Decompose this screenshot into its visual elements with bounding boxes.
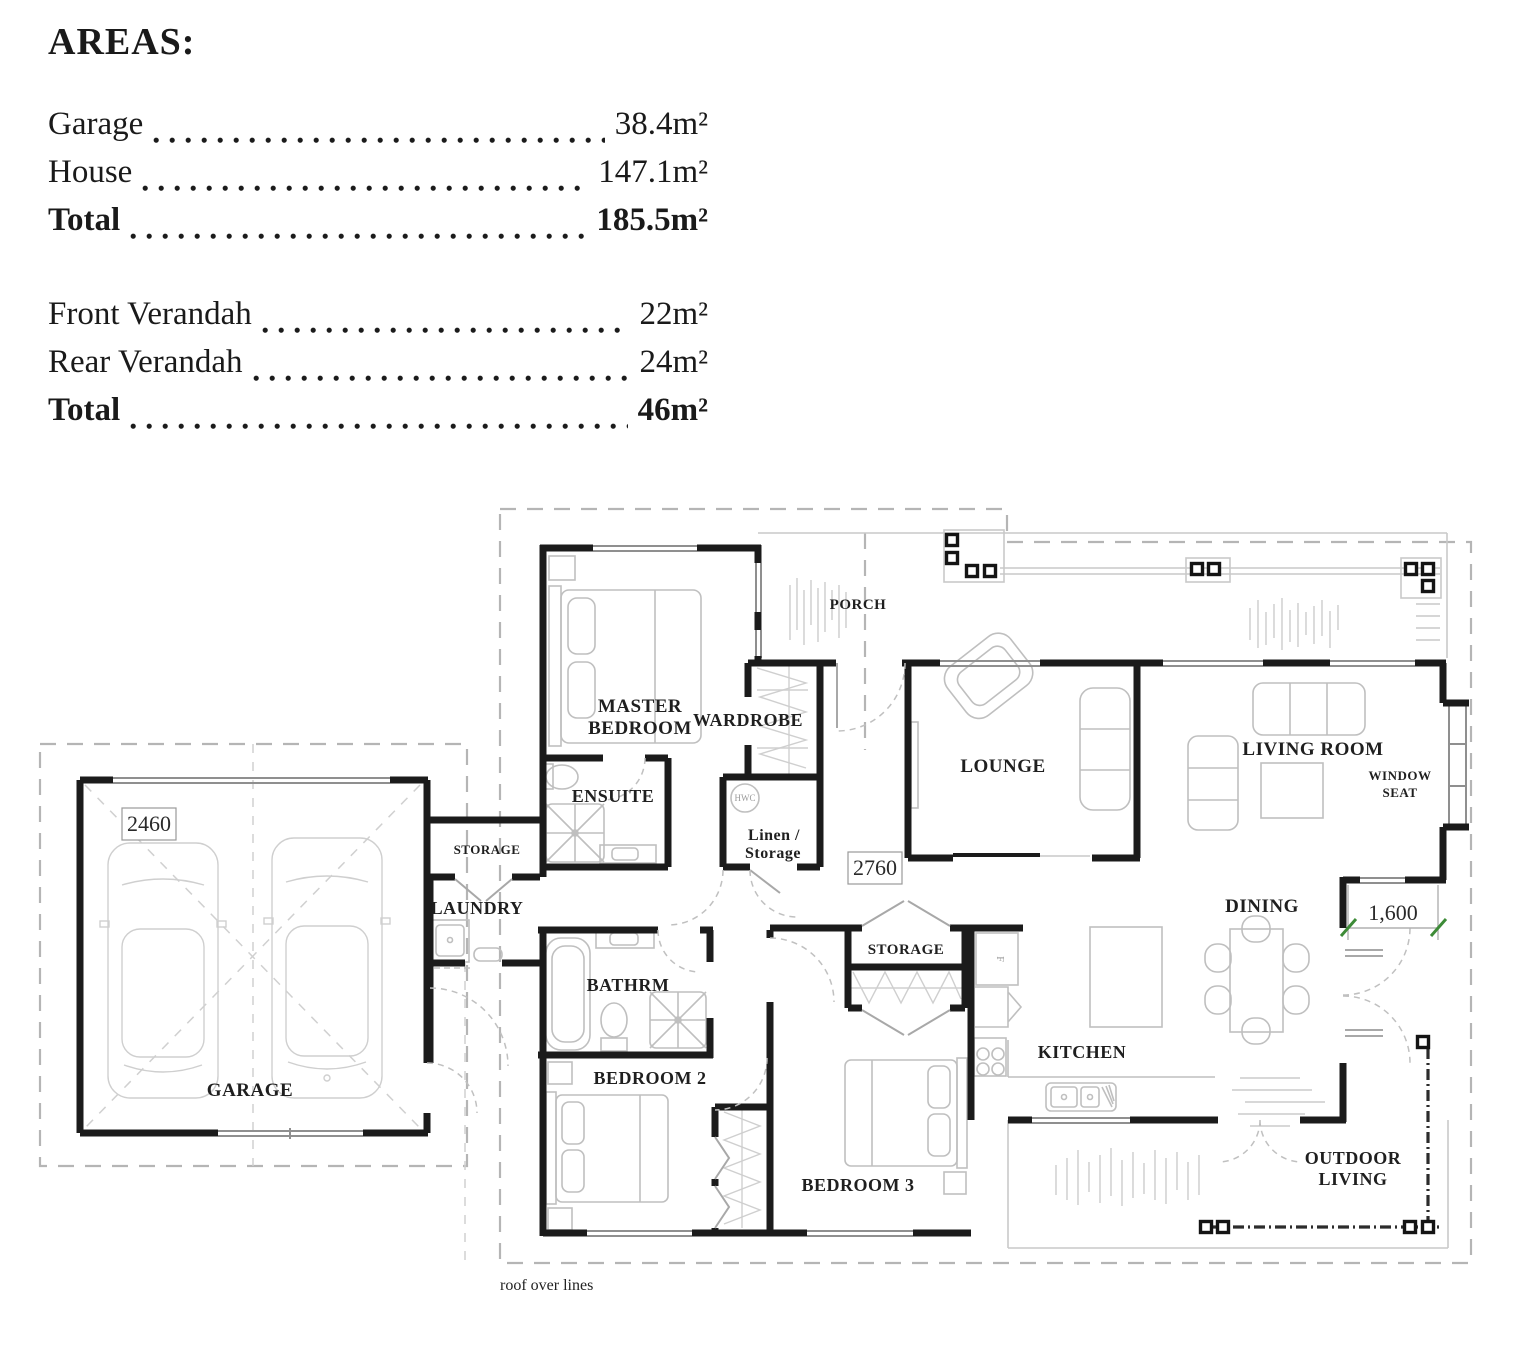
area-value: 38.4m² bbox=[615, 106, 708, 143]
dim-2760: 2760 bbox=[853, 855, 897, 880]
area-row-total-building: Total 185.5m² bbox=[48, 202, 708, 250]
dimension-garage-bay: 2460 bbox=[122, 808, 176, 840]
label-laundry: LAUNDRY bbox=[431, 898, 524, 918]
area-label: Total bbox=[48, 392, 120, 429]
areas-panel: AREAS: Garage 38.4m² House 147.1m² Total… bbox=[48, 20, 708, 440]
label-master-bedroom-1: MASTER bbox=[598, 696, 682, 717]
lounge-furniture bbox=[911, 627, 1130, 810]
label-garage: GARAGE bbox=[207, 1080, 293, 1101]
areas-verandah-group: Front Verandah 22m² Rear Verandah 24m² T… bbox=[48, 296, 708, 440]
leader-dots bbox=[130, 422, 627, 431]
label-bathrm: BATHRM bbox=[587, 975, 670, 995]
deck-balustrade bbox=[1201, 1037, 1441, 1233]
area-label: House bbox=[48, 154, 132, 191]
kitchen-fittings bbox=[974, 927, 1215, 1111]
dimension-hall: 2760 bbox=[848, 852, 902, 884]
leader-dots bbox=[142, 184, 588, 193]
area-row-house: House 147.1m² bbox=[48, 154, 708, 202]
areas-title: AREAS: bbox=[48, 20, 708, 64]
label-bedroom2: BEDROOM 2 bbox=[593, 1068, 706, 1088]
label-master-bedroom-2: BEDROOM bbox=[588, 718, 692, 739]
area-value: 147.1m² bbox=[598, 154, 708, 191]
label-outdoor-living-2: LIVING bbox=[1318, 1169, 1387, 1189]
area-row-rear-verandah: Rear Verandah 24m² bbox=[48, 344, 708, 392]
hwc-unit: HWC bbox=[731, 784, 759, 812]
dining-set bbox=[1205, 916, 1309, 1044]
label-storage-garage: STORAGE bbox=[454, 842, 521, 857]
label-window-seat-2: SEAT bbox=[1383, 785, 1418, 800]
hwc-label: HWC bbox=[735, 793, 756, 803]
roof-over-note: roof over lines bbox=[500, 1277, 593, 1294]
garage-cars bbox=[100, 838, 390, 1098]
area-label: Total bbox=[48, 202, 120, 239]
area-label: Garage bbox=[48, 106, 143, 143]
hall-closet-rails bbox=[724, 1110, 760, 1228]
label-porch: PORCH bbox=[830, 597, 887, 613]
bedroom3-bed bbox=[845, 1058, 967, 1194]
area-value: 46m² bbox=[638, 392, 708, 429]
storage-rails bbox=[851, 972, 962, 1003]
leader-dots bbox=[262, 326, 630, 335]
walls bbox=[80, 545, 1469, 1236]
label-linen-2: Storage bbox=[745, 845, 801, 862]
label-dining: DINING bbox=[1225, 896, 1299, 917]
label-outdoor-living-1: OUTDOOR bbox=[1305, 1148, 1402, 1168]
fridge-label: F bbox=[994, 956, 1005, 962]
label-ensuite: ENSUITE bbox=[572, 786, 655, 806]
label-wardrobe: WARDROBE bbox=[693, 710, 803, 730]
group-gap bbox=[48, 250, 708, 296]
area-row-garage: Garage 38.4m² bbox=[48, 106, 708, 154]
label-kitchen: KITCHEN bbox=[1038, 1042, 1127, 1062]
label-storage-hall: STORAGE bbox=[868, 942, 945, 958]
area-value: 24m² bbox=[639, 344, 708, 381]
leader-dots bbox=[253, 374, 630, 383]
label-window-seat-1: WINDOW bbox=[1369, 768, 1432, 783]
dimension-deck: 1,600 bbox=[1341, 885, 1446, 940]
area-label: Rear Verandah bbox=[48, 344, 243, 381]
label-linen-1: Linen / bbox=[748, 827, 800, 844]
label-lounge: LOUNGE bbox=[960, 756, 1045, 777]
label-bedroom3: BEDROOM 3 bbox=[801, 1175, 914, 1195]
label-living-room: LIVING ROOM bbox=[1242, 739, 1383, 760]
dim-1600: 1,600 bbox=[1368, 900, 1418, 925]
area-row-total-verandah: Total 46m² bbox=[48, 392, 708, 440]
leader-dots bbox=[130, 232, 586, 241]
dim-2460: 2460 bbox=[127, 811, 171, 836]
area-row-front-verandah: Front Verandah 22m² bbox=[48, 296, 708, 344]
ensuite-fittings bbox=[544, 764, 656, 863]
area-value: 22m² bbox=[639, 296, 708, 333]
area-label: Front Verandah bbox=[48, 296, 252, 333]
area-value: 185.5m² bbox=[596, 202, 708, 239]
leader-dots bbox=[153, 136, 604, 145]
areas-building-group: Garage 38.4m² House 147.1m² Total 185.5m… bbox=[48, 106, 708, 250]
